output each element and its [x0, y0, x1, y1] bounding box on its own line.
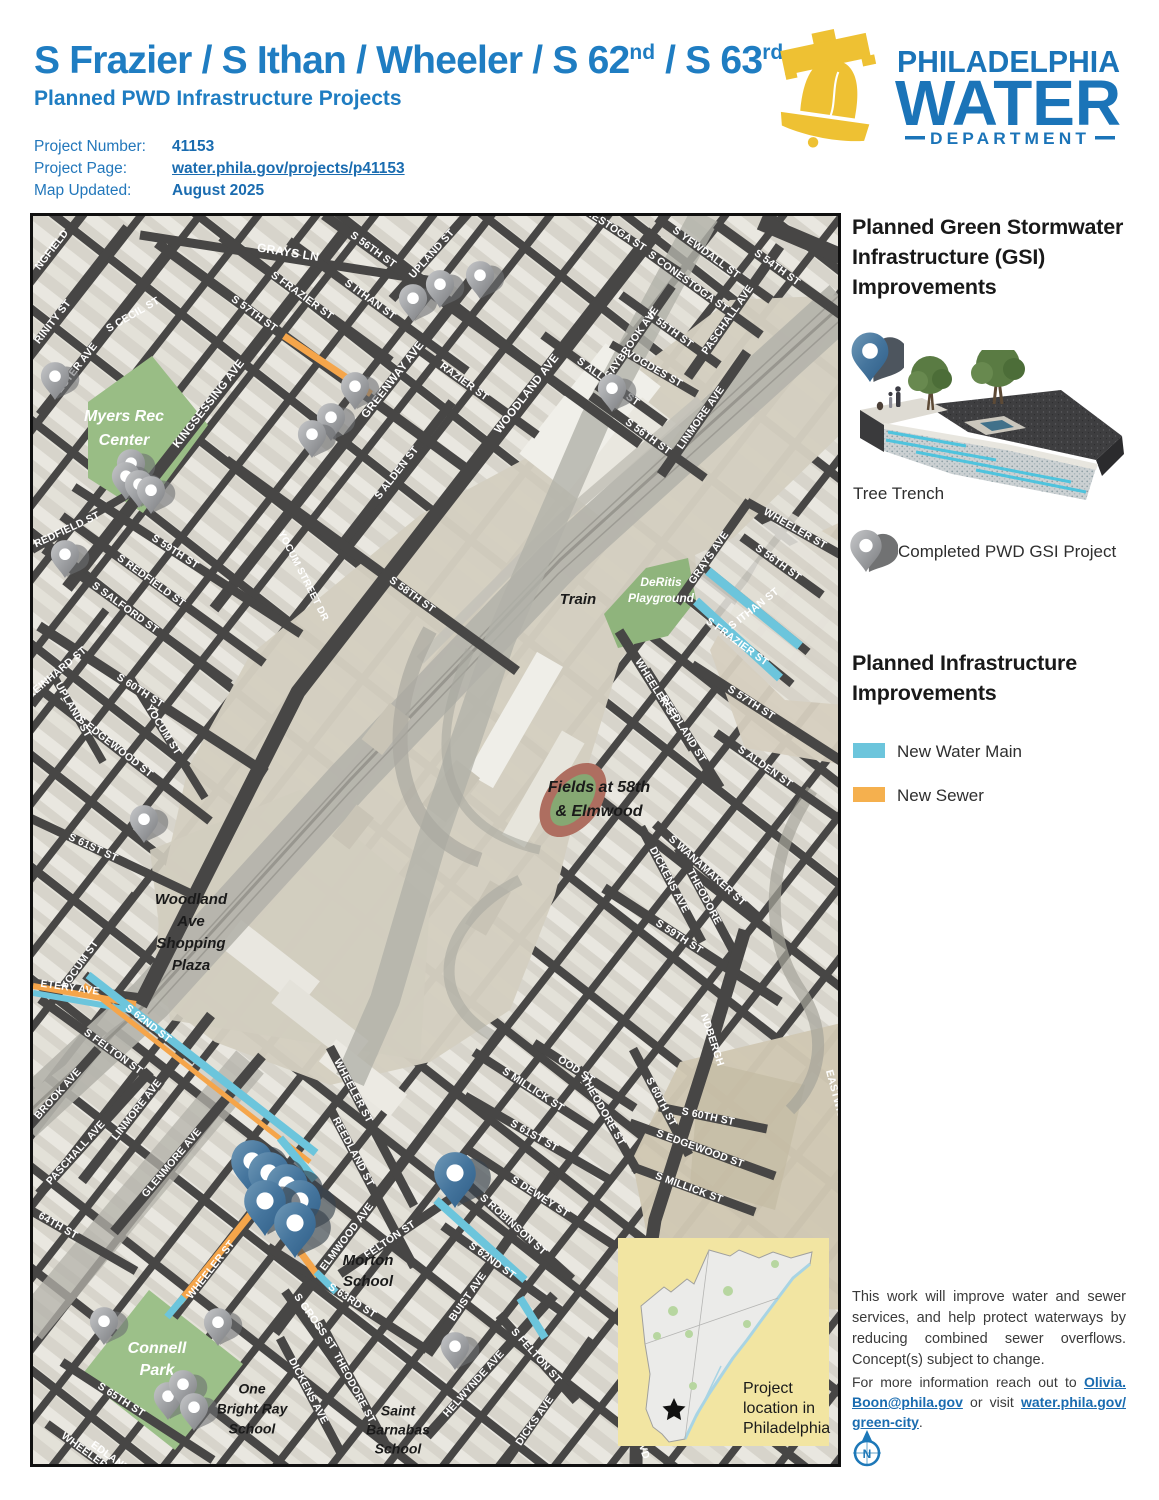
svg-text:Ave: Ave — [176, 913, 205, 930]
svg-text:Connell: Connell — [128, 1340, 187, 1357]
svg-text:One: One — [238, 1381, 265, 1397]
svg-text:Plaza: Plaza — [172, 957, 210, 974]
svg-text:Barnabas: Barnabas — [366, 1422, 430, 1438]
svg-text:Philadelphia: Philadelphia — [743, 1420, 830, 1437]
svg-text:DEPARTMENT: DEPARTMENT — [930, 129, 1090, 148]
svg-text:Park: Park — [140, 1362, 176, 1379]
svg-text:Saint: Saint — [381, 1403, 417, 1419]
svg-text:location in: location in — [743, 1400, 815, 1417]
svg-text:School: School — [375, 1441, 423, 1457]
svg-text:Center: Center — [99, 432, 150, 449]
svg-text:& Elmwood: & Elmwood — [555, 803, 643, 820]
svg-text:Shopping: Shopping — [156, 935, 225, 952]
svg-text:Myers Rec: Myers Rec — [84, 408, 164, 425]
svg-text:Playground: Playground — [628, 591, 695, 605]
svg-text:Project: Project — [743, 1380, 793, 1397]
svg-text:School: School — [229, 1421, 277, 1437]
svg-text:Fields at 58th: Fields at 58th — [548, 779, 650, 796]
svg-text:Morton: Morton — [343, 1252, 394, 1269]
svg-text:Train: Train — [560, 591, 596, 608]
svg-text:School: School — [343, 1273, 394, 1290]
svg-text:Woodland: Woodland — [155, 891, 228, 908]
svg-text:DeRitis: DeRitis — [640, 575, 682, 589]
svg-text:N: N — [863, 1447, 872, 1461]
svg-text:Bright Ray: Bright Ray — [217, 1401, 289, 1417]
